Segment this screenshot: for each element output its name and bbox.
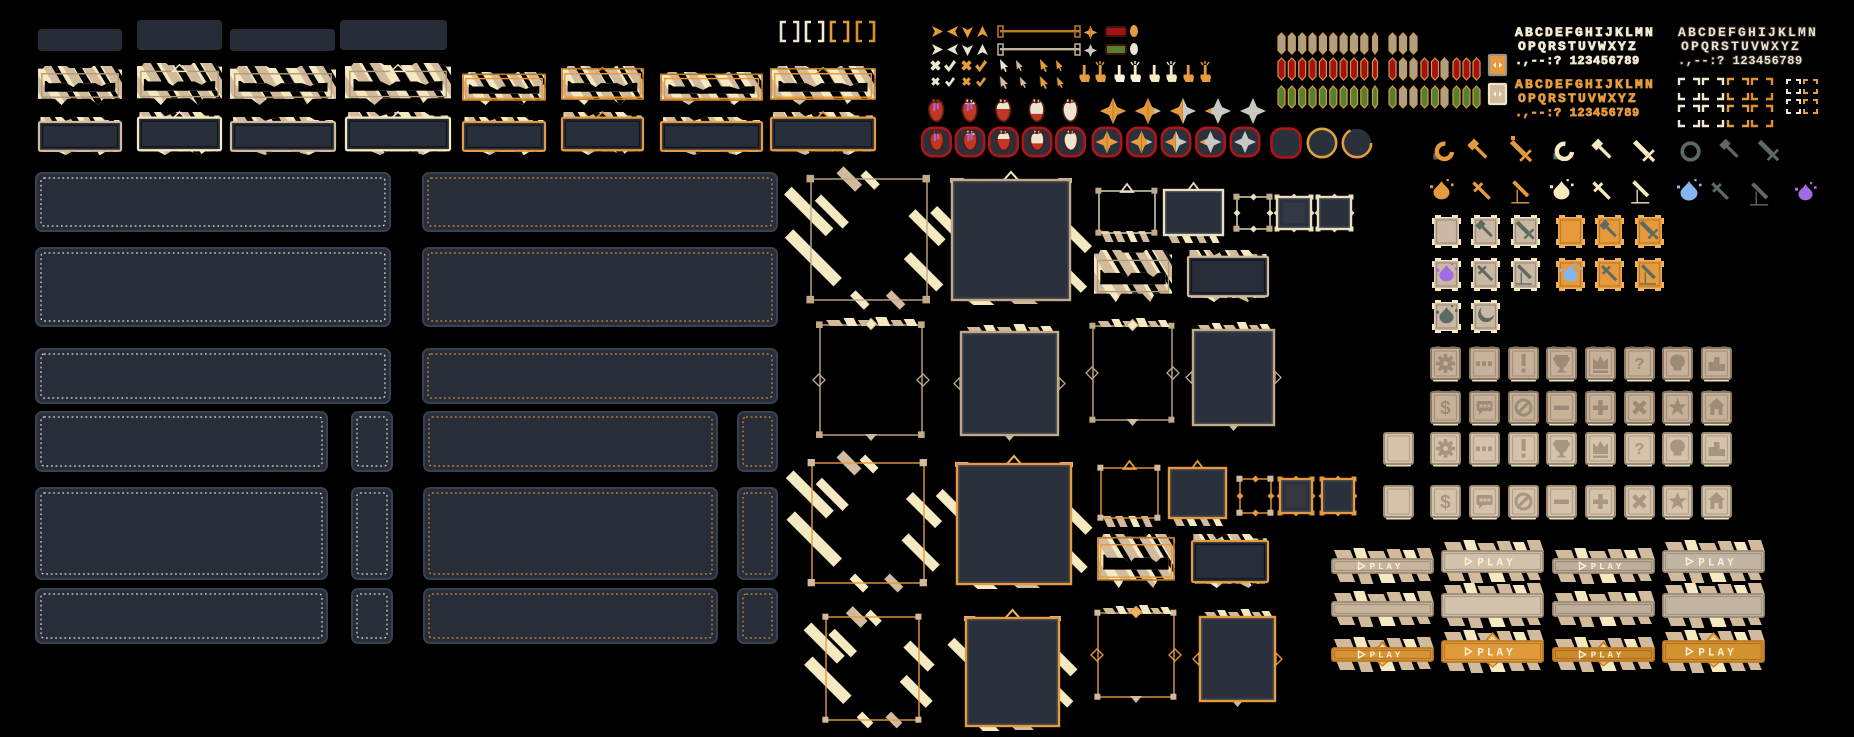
svg-text:PLAY: PLAY	[1370, 651, 1404, 661]
svg-text:?: ?	[1634, 441, 1644, 460]
svg-text:ABCDEFGHIJKLMN: ABCDEFGHIJKLMN	[1515, 25, 1655, 40]
svg-text:$: $	[1440, 398, 1451, 420]
svg-text:PLAY: PLAY	[1370, 562, 1404, 572]
svg-text:OPQRSTUVWXYZ: OPQRSTUVWXYZ	[1681, 39, 1801, 54]
svg-text:PLAY: PLAY	[1477, 557, 1515, 569]
svg-text:$: $	[1440, 492, 1451, 514]
svg-text:PLAY: PLAY	[1698, 557, 1736, 569]
svg-text:OPQRSTUVWXYZ: OPQRSTUVWXYZ	[1518, 91, 1638, 106]
svg-text:OPQRSTUVWXYZ: OPQRSTUVWXYZ	[1518, 39, 1638, 54]
svg-text:.,--:? 123456789: .,--:? 123456789	[1515, 54, 1640, 68]
svg-text:.,--:? 123456789: .,--:? 123456789	[1515, 106, 1640, 120]
svg-text:?: ?	[1634, 356, 1644, 375]
svg-text:PLAY: PLAY	[1591, 562, 1625, 572]
svg-text:PLAY: PLAY	[1477, 647, 1515, 659]
svg-text:ABCDEFGHIJKLMN: ABCDEFGHIJKLMN	[1678, 25, 1818, 40]
svg-text:ABCDEFGHIJKLMN: ABCDEFGHIJKLMN	[1515, 77, 1655, 92]
svg-text:PLAY: PLAY	[1591, 651, 1625, 661]
svg-text:.,--:? 123456789: .,--:? 123456789	[1678, 54, 1803, 68]
svg-text:PLAY: PLAY	[1698, 647, 1736, 659]
